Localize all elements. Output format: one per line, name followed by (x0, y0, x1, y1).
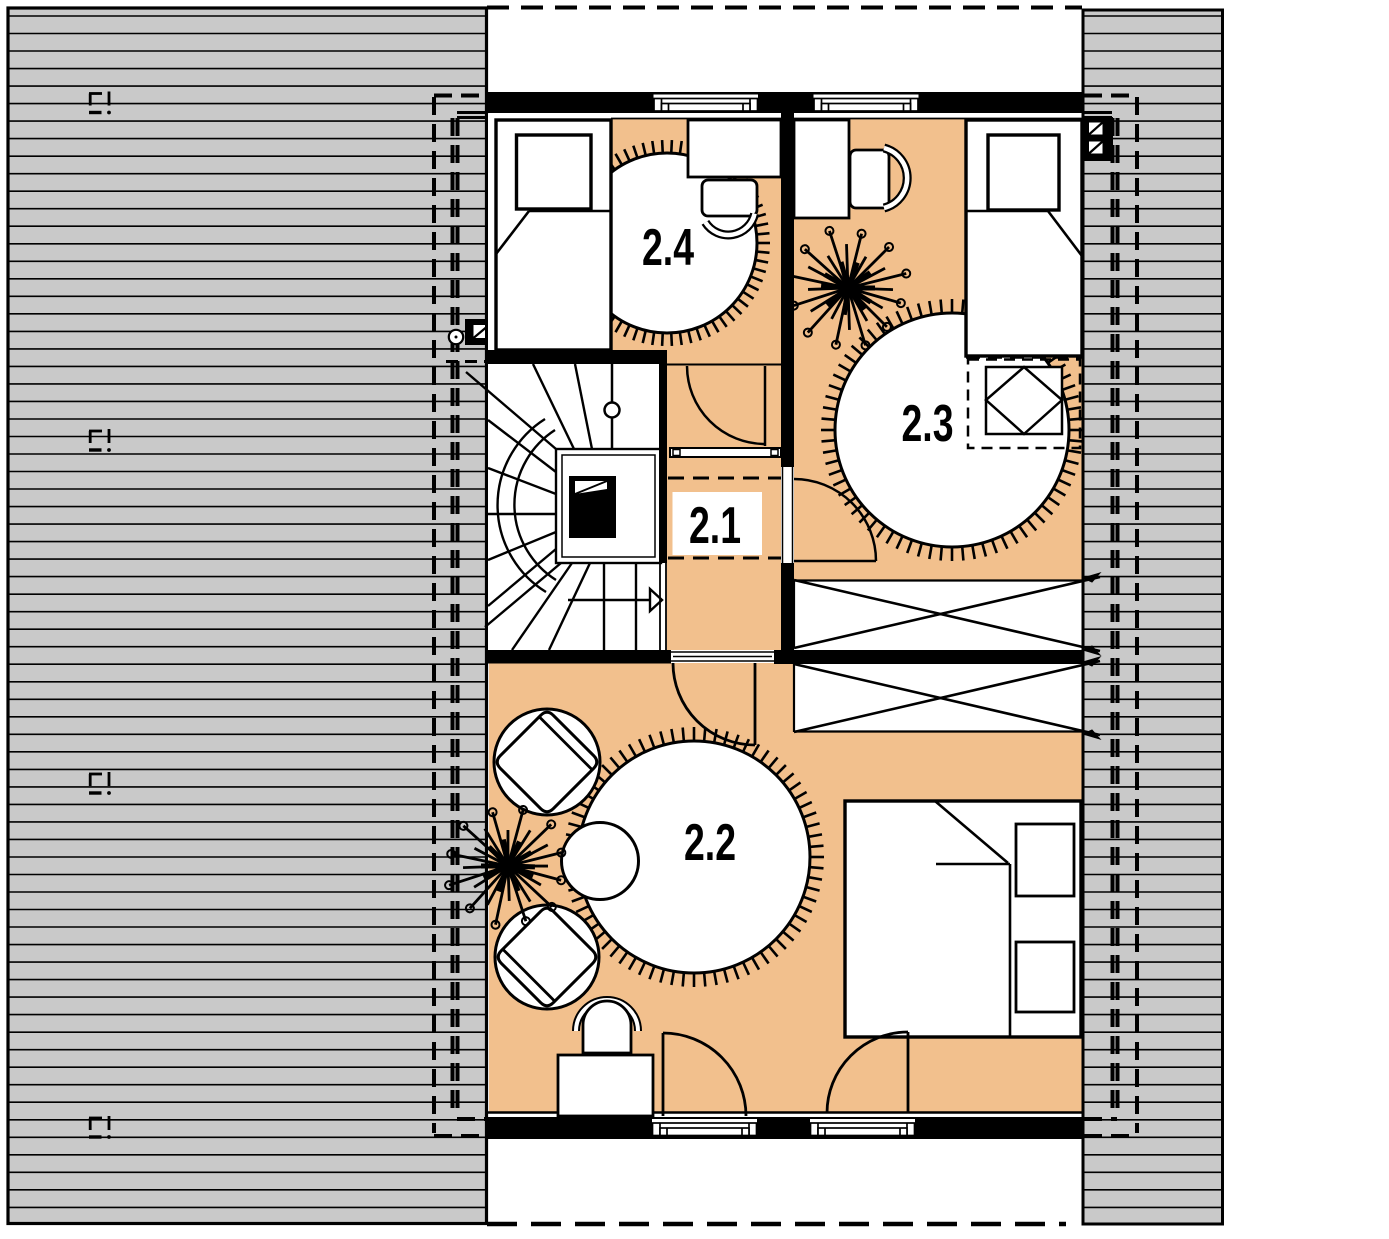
svg-text:2.3: 2.3 (901, 394, 953, 453)
svg-text:2.4: 2.4 (642, 218, 694, 277)
svg-text:2.2: 2.2 (684, 813, 736, 872)
svg-text:2.1: 2.1 (689, 496, 741, 555)
